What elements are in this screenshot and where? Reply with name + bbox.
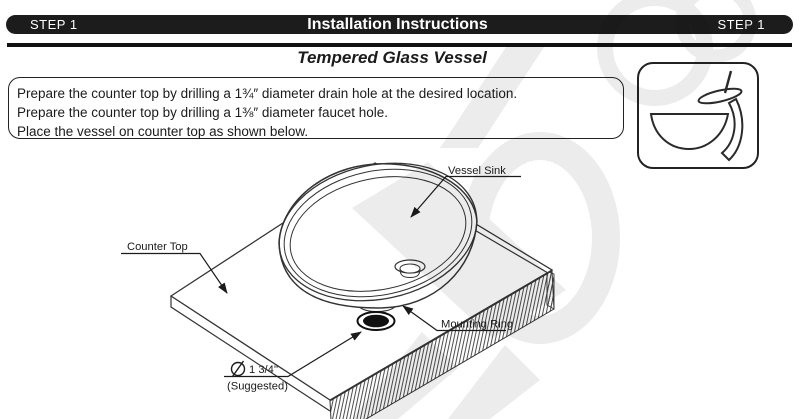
vessel-sink-label: Vessel Sink	[448, 165, 506, 177]
product-icon-box	[637, 62, 759, 169]
instruction-box: Prepare the counter top by drilling a 1¾…	[8, 77, 624, 139]
mounting-ring-label: Mounting Ring	[441, 319, 513, 331]
drain-size-label: 1 3/4''	[249, 364, 278, 376]
page-title: Installation Instructions	[180, 16, 615, 34]
diameter-icon	[232, 361, 245, 377]
instruction-line-2: Prepare the counter top by drilling a 1⅜…	[17, 103, 615, 122]
drain-hole	[358, 312, 395, 330]
icon-spout	[722, 99, 742, 160]
counter-top-label: Counter Top	[127, 241, 188, 253]
drain-note-label: (Suggested)	[227, 381, 288, 393]
step-label-left: STEP 1	[6, 17, 180, 32]
instruction-line-1: Prepare the counter top by drilling a 1¾…	[17, 84, 615, 103]
instruction-line-3: Place the vessel on counter top as shown…	[17, 122, 615, 141]
step-label-right: STEP 1	[615, 17, 793, 32]
installation-instructions-page: { "header": { "step_left": "STEP 1", "ti…	[0, 0, 800, 419]
header-divider	[7, 43, 792, 47]
counter-right-edge	[547, 271, 554, 309]
icon-disc	[697, 86, 742, 107]
vessel-sink-faucet-icon	[639, 64, 757, 167]
icon-bowl	[651, 114, 728, 149]
header-bar: STEP 1 Installation Instructions STEP 1	[6, 15, 793, 34]
